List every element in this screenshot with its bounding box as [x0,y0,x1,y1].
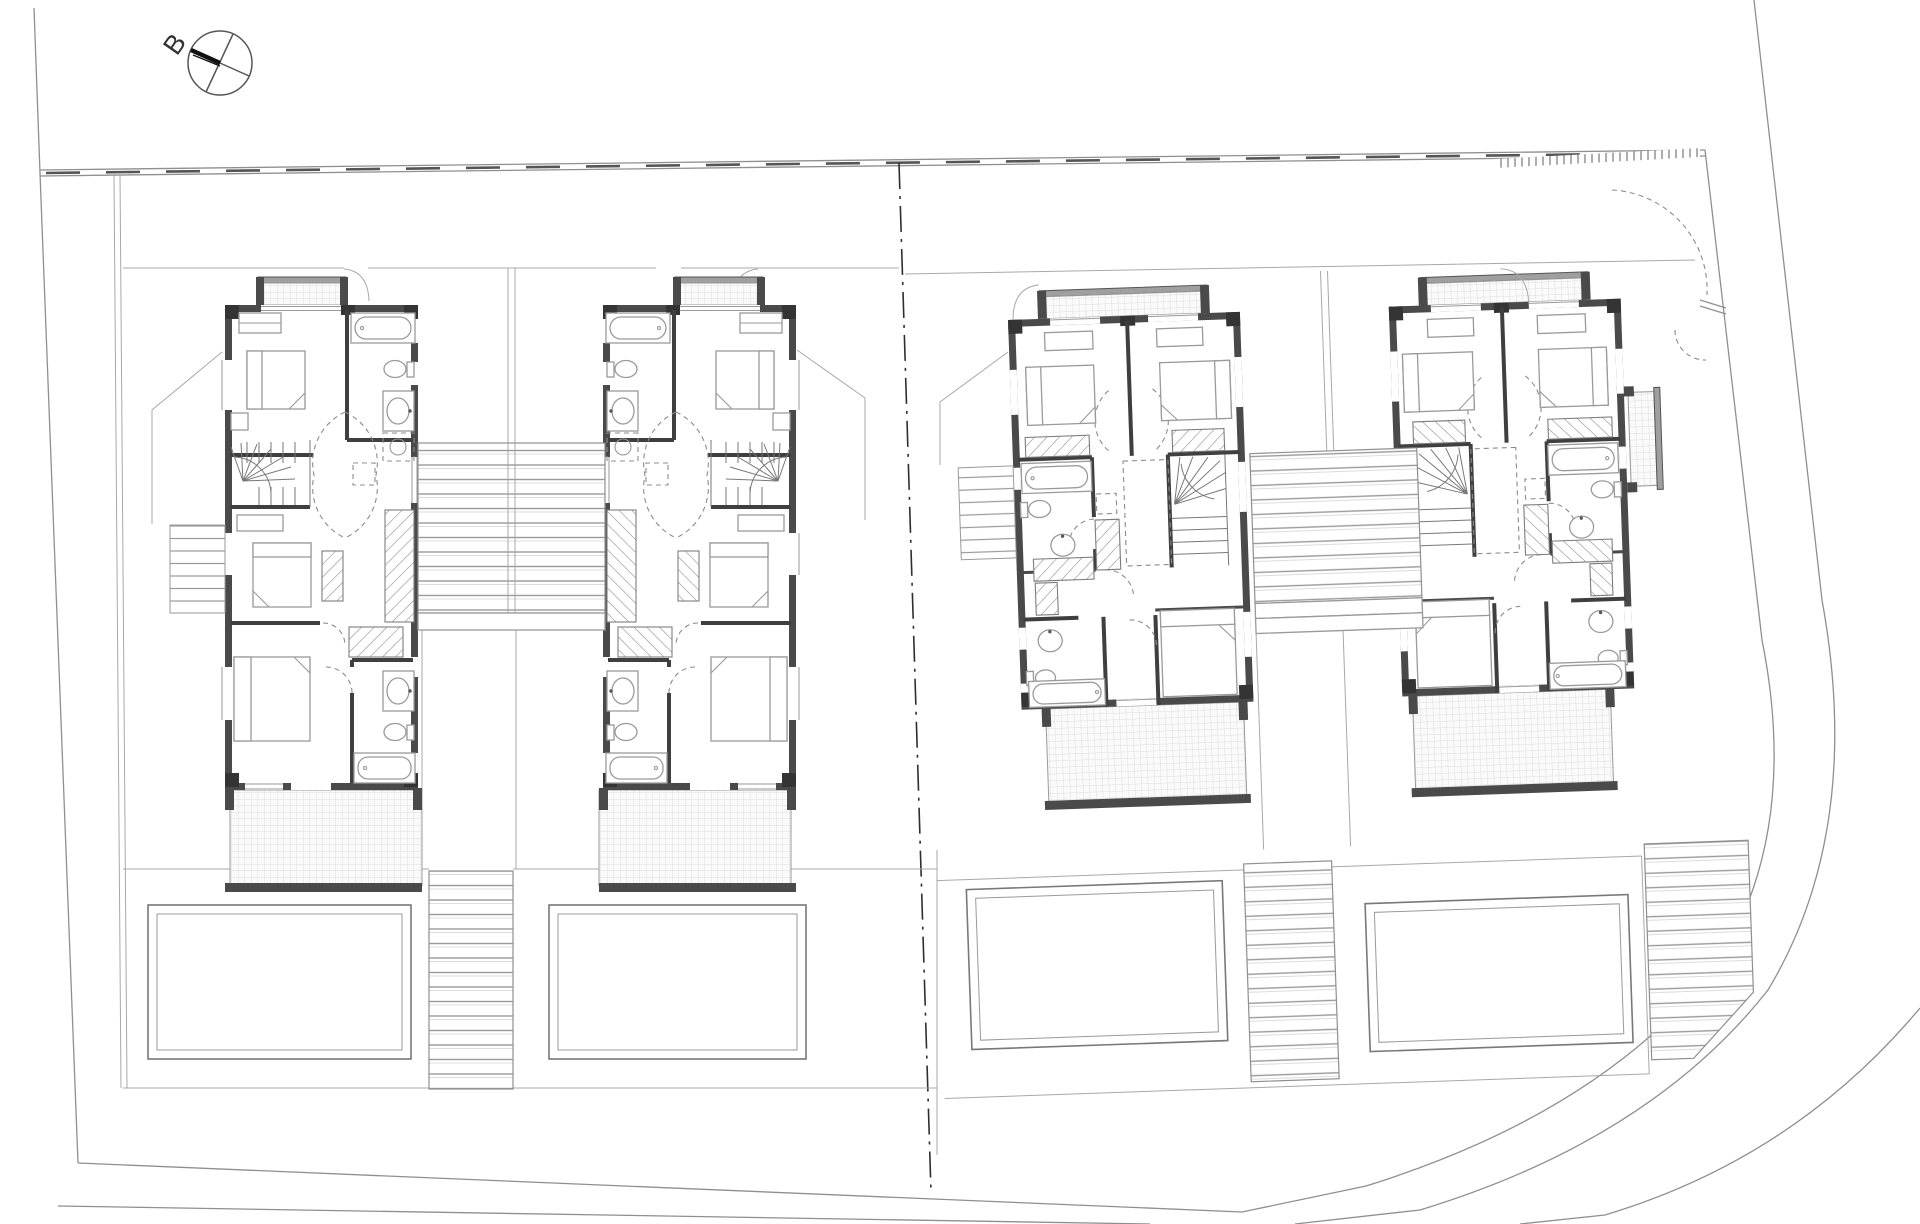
floor-plan-canvas: B [0,0,1920,1224]
house-unit-3 [1007,284,1257,811]
deck-east [1250,448,1423,634]
pool-stairs-east [1244,861,1340,1082]
garden-steps-1 [170,525,225,613]
pool-4 [1365,895,1633,1052]
house-unit-4 [1388,271,1638,798]
side-balcony-unit-4 [1624,385,1664,492]
pool-1 [148,905,411,1059]
pool-stairs-far-east [1644,840,1755,1059]
deck-west [418,443,605,630]
east-grounds [937,840,1757,1098]
driveway-gate [1612,190,1726,360]
plan-sheet: B [0,0,1920,1224]
section-marker-label: B [157,28,192,60]
house-unit-1 [222,277,422,892]
house-unit-2 [599,277,799,892]
north-marker: B [157,28,252,95]
pool-2 [549,905,806,1059]
east-pair [952,259,1676,859]
property-divider-line [899,163,931,1192]
top-boundary [40,148,1705,176]
garden-steps-3 [958,466,1016,560]
pool-3 [966,881,1227,1050]
pool-stairs-west [429,871,513,1089]
